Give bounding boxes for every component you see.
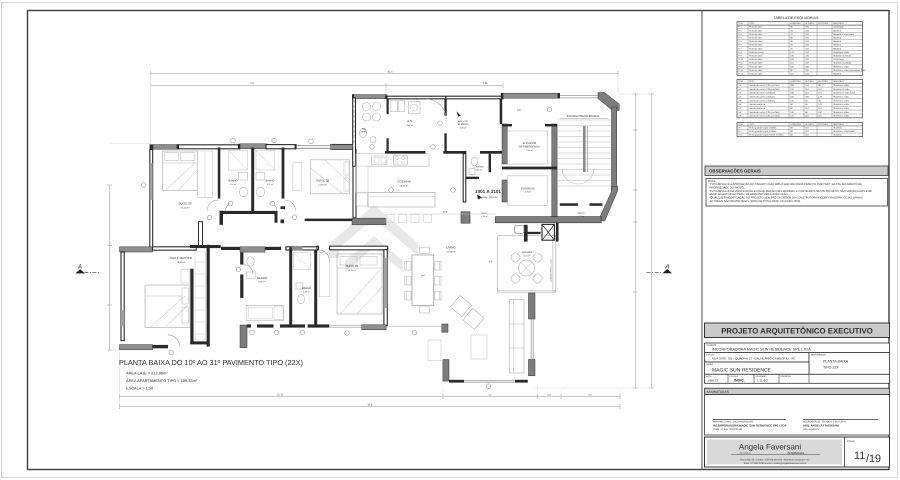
svg-text:CAU A33592-5: CAU A33592-5 (803, 428, 820, 431)
svg-text:PROPRIEDADE DO IMÓVEL.: PROPRIEDADE DO IMÓVEL. (710, 185, 746, 189)
svg-text:Janela de correr (2 fls. per.f: Janela de correr (2 fls. per.fixa) (749, 115, 779, 118)
svg-text:DATA: DATA (706, 375, 712, 378)
svg-text:Alumínio revestido: Alumínio revestido (833, 62, 852, 65)
svg-text:ABR 18: ABR 18 (708, 379, 719, 383)
svg-text:LARGURA: LARGURA (790, 123, 801, 126)
svg-text:OBSERVAÇÕES GERAIS: OBSERVAÇÕES GERAIS (709, 169, 761, 174)
svg-text:P-14: P-14 (738, 72, 743, 75)
svg-text:AUTORAIS SÃO RESPEITADAS, SERÁ: AUTORAIS SÃO RESPEITADAS, SERÁ DE TOTAL … (710, 199, 802, 203)
svg-text:Janela de correr (2 folhas): Janela de correr (2 folhas) (749, 99, 775, 102)
svg-text:TIPO: TIPO (749, 80, 754, 83)
svg-text:Porta de abrir: Porta de abrir (749, 65, 763, 68)
svg-text:OBRA: OBRA (707, 363, 714, 366)
svg-text:Porta de abrir: Porta de abrir (749, 44, 763, 47)
svg-text:Corta-fogo: Corta-fogo (833, 26, 844, 29)
svg-text:Fone: 47 3367-1000 e-mail: con: Fone: 47 3367-1000 e-mail: contato@angel… (744, 462, 807, 465)
svg-text:Alumínio e vidro: Alumínio e vidro (833, 96, 849, 99)
svg-text:Madeira: Madeira (833, 29, 842, 32)
svg-text:PEITORIL: PEITORIL (818, 80, 829, 83)
svg-text:ESCALA: ESCALA (730, 375, 739, 378)
svg-text:HALL: HALL (482, 212, 489, 215)
svg-text:ALTURA: ALTURA (805, 123, 814, 126)
svg-text:Janela de correr (2 fls. per.f: Janela de correr (2 fls. per.fixa) (749, 111, 779, 114)
svg-text:Porta guarda-corpo 1 folhas: Porta guarda-corpo 1 folhas (749, 130, 777, 133)
svg-text:10,09 m²: 10,09 m² (400, 185, 409, 188)
svg-text:A: A (77, 264, 82, 271)
svg-text:Porta de abrir: Porta de abrir (749, 54, 763, 57)
svg-text:RESP. AO AUTOR DO PROJ. DE ARQ: RESP. AO AUTOR DO PROJ. DE ARQUITETURA E… (710, 192, 789, 196)
svg-text:3,11 m²: 3,11 m² (230, 183, 237, 186)
svg-text:Alumínio e vidro (veneziana fi: Alumínio e vidro (veneziana fixa) (833, 69, 865, 72)
svg-text:P-12: P-12 (738, 65, 743, 68)
svg-text:11: 11 (854, 450, 865, 462)
svg-text:PEITORIL: PEITORIL (818, 22, 829, 25)
svg-text:14,11 m²: 14,11 m² (348, 269, 357, 272)
svg-text:Porta de abrir: Porta de abrir (749, 47, 763, 50)
svg-text:1:11 0-2: 1:11 0-2 (757, 379, 768, 383)
svg-text:ALTURA: ALTURA (805, 22, 814, 25)
svg-text:SACADA: SACADA (522, 251, 533, 254)
svg-text:INDIC.: INDIC. (734, 379, 745, 383)
svg-text:Janela maxim-ar: Janela maxim-ar (749, 107, 765, 110)
svg-text:Alumínio: Alumínio (833, 134, 842, 137)
svg-text:LAVABO: LAVABO (474, 165, 483, 168)
svg-text:PROJETO ARQUITETÔNICO EXECUTIV: PROJETO ARQUITETÔNICO EXECUTIVO (721, 327, 873, 336)
svg-text:PLANTA BAIXA DO 10º AO 31º PAV: PLANTA BAIXA DO 10º AO 31º PAVIMENTO TIP… (119, 358, 303, 367)
svg-text:Madeira: Madeira (833, 40, 842, 43)
svg-text:Janela de correr (2 fls. per.f: Janela de correr (2 fls. per.fixa) (749, 84, 779, 87)
svg-text:ELEVADOR: ELEVADOR (521, 187, 535, 190)
svg-text:Alumínio e vidro: Alumínio e vidro (833, 103, 849, 106)
svg-text:BANHO: BANHO (257, 276, 268, 280)
svg-text:31,6: 31,6 (368, 403, 373, 406)
svg-text:MATERIAL: MATERIAL (833, 80, 845, 83)
svg-text:Alumínio e vidro: Alumínio e vidro (833, 111, 849, 114)
svg-text:PC: PC (517, 109, 521, 112)
svg-text:Alumínio c/ vidro fumê: Alumínio c/ vidro fumê (833, 92, 855, 95)
svg-text:Porta de abrir: Porta de abrir (749, 58, 763, 61)
svg-text:SUITE 02: SUITE 02 (316, 178, 329, 182)
svg-text:P-11: P-11 (738, 62, 743, 65)
svg-text:Porta de abrir: Porta de abrir (749, 72, 763, 75)
svg-text:Alumínio e vidro: Alumínio e vidro (833, 51, 849, 54)
svg-text:7,46: 7,46 (483, 82, 488, 85)
svg-text:Janela maxim-ar: Janela maxim-ar (749, 103, 765, 106)
svg-text:INCORPORADORA MAGIC SUN RESIDE: INCORPORADORA MAGIC SUN RESIDENCE SPE LT… (712, 348, 811, 352)
svg-text:Porta de abrir: Porta de abrir (749, 40, 763, 43)
svg-text:17,22 m²: 17,22 m² (181, 207, 190, 210)
svg-text:Porta de abrir: Porta de abrir (749, 33, 763, 36)
svg-text:Porta de abrir: Porta de abrir (749, 36, 763, 39)
svg-text:COD: COD (738, 123, 743, 126)
svg-text:Porta de correr: Porta de correr (749, 51, 764, 54)
svg-text:DE EMERGÊNCIA: DE EMERGÊNCIA (519, 144, 540, 148)
svg-text:/19: /19 (866, 453, 881, 465)
svg-text:A.S.: A.S. (407, 119, 413, 123)
svg-text:4,15 m²: 4,15 m² (481, 215, 488, 218)
svg-text:Corta-fogo: Corta-fogo (833, 58, 844, 61)
svg-text:1001 A 3101: 1001 A 3101 (475, 189, 501, 194)
svg-text:Madeira: Madeira (833, 44, 842, 47)
svg-text:Porta guarda-corpo maxim 1 fol: Porta guarda-corpo maxim 1 folhas (749, 134, 784, 137)
svg-text:Arquitetura: Arquitetura (787, 451, 804, 455)
svg-text:Janela de correr (3 folhas): Janela de correr (3 folhas) (749, 92, 775, 95)
svg-text:TABELA DE ESQUADRIAS: TABELA DE ESQUADRIAS (773, 16, 819, 20)
svg-text:ÁREA: 185,33m²: ÁREA: 185,33m² (482, 196, 498, 199)
svg-text:TIPO: TIPO (749, 123, 754, 126)
svg-text:TIPO 22X: TIPO 22X (823, 366, 839, 370)
svg-text:DUTO: DUTO (578, 212, 585, 215)
svg-text:Angela Faversani: Angela Faversani (739, 442, 801, 451)
svg-text:Alumínio revestido: Alumínio revestido (833, 54, 852, 57)
svg-text:Alumínio e vidro: Alumínio e vidro (833, 99, 849, 102)
svg-text:MATERIAL: MATERIAL (833, 22, 845, 25)
svg-text:Porta de abrir: Porta de abrir (749, 69, 763, 72)
svg-text:1,63 m²: 1,63 m² (476, 168, 483, 171)
svg-text:Janela de correr (2 fls. per.f: Janela de correr (2 fls. per.fixa) (749, 88, 779, 91)
svg-text:WC: WC (362, 128, 366, 131)
svg-text:31,6: 31,6 (388, 70, 393, 73)
svg-text:MATERIAL: MATERIAL (833, 123, 845, 126)
svg-text:P-13: P-13 (738, 69, 743, 72)
svg-text:Rua 2438, 95 - Centro - CEP 88: Rua 2438, 95 - Centro - CEP 88.330-413 -… (740, 458, 810, 461)
svg-text:LARGURA: LARGURA (790, 22, 801, 25)
svg-text:TIPO: TIPO (749, 22, 754, 25)
svg-text:Alumínio e vidro: Alumínio e vidro (833, 115, 849, 118)
svg-text:15,75: 15,75 (277, 393, 284, 396)
svg-text:Alumínio e vidro fumê: Alumínio e vidro fumê (833, 130, 855, 133)
svg-text:PEITORIL: PEITORIL (818, 123, 829, 126)
svg-text:21,98 m²: 21,98 m² (447, 251, 456, 254)
svg-text:SERVIÇO: SERVIÇO (458, 123, 469, 126)
svg-text:3,11 m²: 3,11 m² (267, 183, 274, 186)
svg-text:3,09 m²: 3,09 m² (460, 126, 467, 129)
svg-text:ARQ. ANGELA FAVERSANI: ARQ. ANGELA FAVERSANI (803, 423, 839, 427)
svg-text:Alumínio e vidro: Alumínio e vidro (833, 65, 849, 68)
svg-text:ÁREA LAJE = 213,99m²: ÁREA LAJE = 213,99m² (126, 371, 168, 376)
svg-text:ÁREA APARTAMENTO TIPO = 185,33: ÁREA APARTAMENTO TIPO = 185,33m² (126, 378, 198, 383)
svg-text:Porta de abrir: Porta de abrir (749, 26, 763, 29)
svg-text:Porta de abrir: Porta de abrir (749, 62, 763, 65)
svg-text:ASSINATURAS: ASSINATURAS (707, 390, 729, 394)
svg-text:PRANCHA: PRANCHA (781, 375, 792, 378)
svg-text:Alumínio: Alumínio (833, 127, 842, 130)
svg-text:P-10: P-10 (738, 58, 743, 61)
svg-text:2,79 m²: 2,79 m² (525, 191, 532, 194)
svg-text:8,33 m²: 8,33 m² (524, 254, 531, 257)
svg-text:GUARDA-CORPO H=1,10m: GUARDA-CORPO H=1,10m (550, 259, 553, 282)
svg-text:A: A (664, 263, 669, 270)
svg-text:ESCADA PRESSURIZADA: ESCADA PRESSURIZADA (567, 115, 600, 118)
svg-text:SUITE 03: SUITE 03 (178, 202, 191, 206)
svg-text:Porta guarda-corpo 1 folhas: Porta guarda-corpo 1 folhas (749, 127, 777, 130)
svg-text:7,6: 7,6 (250, 82, 254, 85)
svg-text:fale conosco: fale conosco (740, 452, 751, 455)
svg-text:4,40 m²: 4,40 m² (407, 124, 414, 127)
svg-text:3,40 m²: 3,40 m² (526, 149, 533, 152)
svg-text:RUA 3700, 725 - QUADRA 13 - BA: RUA 3700, 725 - QUADRA 13 - BALNEÁRIO CA… (712, 357, 796, 361)
svg-text:ESCALA = 1:50: ESCALA = 1:50 (126, 386, 154, 391)
svg-text:ALTURA: ALTURA (805, 80, 814, 83)
svg-text:COD: COD (738, 80, 743, 83)
svg-text:FOLHA: FOLHA (847, 440, 855, 443)
svg-text:CLIENTE: CLIENTE (707, 344, 717, 347)
svg-text:15,43 m²: 15,43 m² (177, 261, 186, 264)
svg-text:CNPJ: 27.528.729/0001-80: CNPJ: 27.528.729/0001-80 (713, 428, 743, 431)
svg-text:Alumínio e vidro: Alumínio e vidro (833, 84, 849, 87)
svg-text:INCORPORADORA MAGIC SUN RESIDE: INCORPORADORA MAGIC SUN RESIDENCE SPE LT… (713, 423, 787, 427)
svg-text:COZINHA: COZINHA (397, 180, 411, 184)
svg-text:DESENHO: DESENHO (756, 375, 767, 378)
svg-text:COD: COD (738, 22, 743, 25)
svg-text:12,65 m²: 12,65 m² (318, 183, 327, 186)
svg-text:Janela de correr (2 folhas): Janela de correr (2 folhas) (749, 96, 775, 99)
svg-text:BANHO: BANHO (229, 179, 238, 182)
svg-text:Madeira: Madeira (833, 47, 842, 50)
svg-text:SERV.: SERV. (361, 130, 368, 133)
svg-text:Madeira: Madeira (833, 36, 842, 39)
svg-text:BANHO: BANHO (302, 287, 311, 290)
svg-text:SUITE 01: SUITE 01 (345, 264, 358, 268)
svg-text:Madeira c/ veneziana: Madeira c/ veneziana (833, 33, 855, 36)
svg-text:LIVING: LIVING (446, 246, 457, 250)
svg-text:REFERÊNCIA: REFERÊNCIA (811, 353, 826, 356)
svg-text:3,26 m²: 3,26 m² (303, 290, 310, 293)
svg-text:Porta de abrir: Porta de abrir (749, 29, 763, 32)
svg-text:PLANTA BAIXA: PLANTA BAIXA (823, 360, 849, 364)
svg-text:5,06 m²: 5,06 m² (259, 281, 266, 284)
svg-text:MAGIC SUN RESIDENCE: MAGIC SUN RESIDENCE (712, 368, 772, 374)
svg-text:LARGURA: LARGURA (790, 80, 801, 83)
svg-text:Alumínio c/ vidro: Alumínio c/ vidro (833, 88, 850, 91)
svg-text:Alumínio e vidro: Alumínio e vidro (833, 107, 849, 110)
svg-text:BANHO: BANHO (266, 179, 275, 182)
svg-text:Madeira: Madeira (833, 72, 842, 75)
svg-text:SUITE MASTER: SUITE MASTER (170, 256, 193, 260)
